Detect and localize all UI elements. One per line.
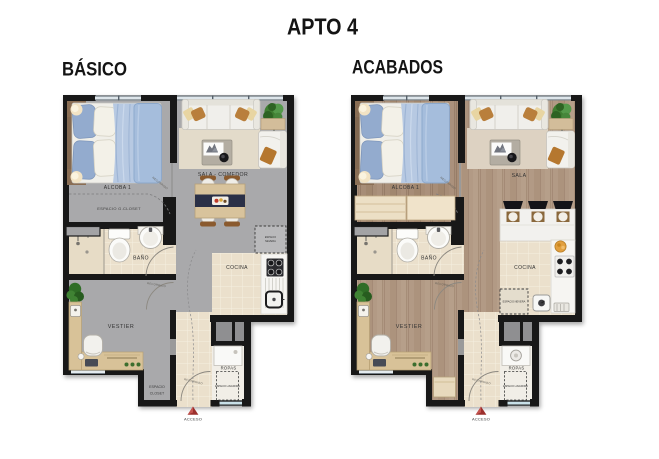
svg-text:BAÑO: BAÑO xyxy=(421,255,437,262)
svg-text:ESPACIO: ESPACIO xyxy=(149,385,165,389)
svg-text:CLOSET: CLOSET xyxy=(150,392,165,396)
svg-text:ROPAS: ROPAS xyxy=(509,366,525,371)
svg-text:ESPACIO NEVERA: ESPACIO NEVERA xyxy=(503,300,526,304)
svg-text:COCINA: COCINA xyxy=(226,265,248,271)
svg-text:ALCOBA 1: ALCOBA 1 xyxy=(392,185,419,191)
svg-text:VESTIER: VESTIER xyxy=(108,324,135,330)
svg-text:ACCESO: ACCESO xyxy=(472,416,490,421)
svg-text:SALA: SALA xyxy=(512,173,527,179)
svg-text:VESTIER: VESTIER xyxy=(396,324,423,330)
svg-text:NEVERA: NEVERA xyxy=(265,239,276,243)
svg-text:ACCESO: ACCESO xyxy=(184,416,202,421)
svg-text:ESPACIO: ESPACIO xyxy=(265,235,276,239)
svg-text:BÁSICO: BÁSICO xyxy=(62,58,127,81)
svg-text:ESPACIO LAVADORA: ESPACIO LAVADORA xyxy=(503,385,528,388)
svg-text:COCINA: COCINA xyxy=(514,265,536,271)
svg-text:ESPACIO LAVADORA: ESPACIO LAVADORA xyxy=(215,385,240,388)
svg-text:ESPACIO G.CLOSET: ESPACIO G.CLOSET xyxy=(97,206,141,211)
svg-text:ALCOBA 1: ALCOBA 1 xyxy=(104,185,131,191)
svg-text:APTO 4: APTO 4 xyxy=(287,14,358,40)
svg-text:BAÑO: BAÑO xyxy=(133,255,149,262)
svg-text:ACABADOS: ACABADOS xyxy=(352,58,443,79)
svg-text:ROPAS: ROPAS xyxy=(221,366,237,371)
